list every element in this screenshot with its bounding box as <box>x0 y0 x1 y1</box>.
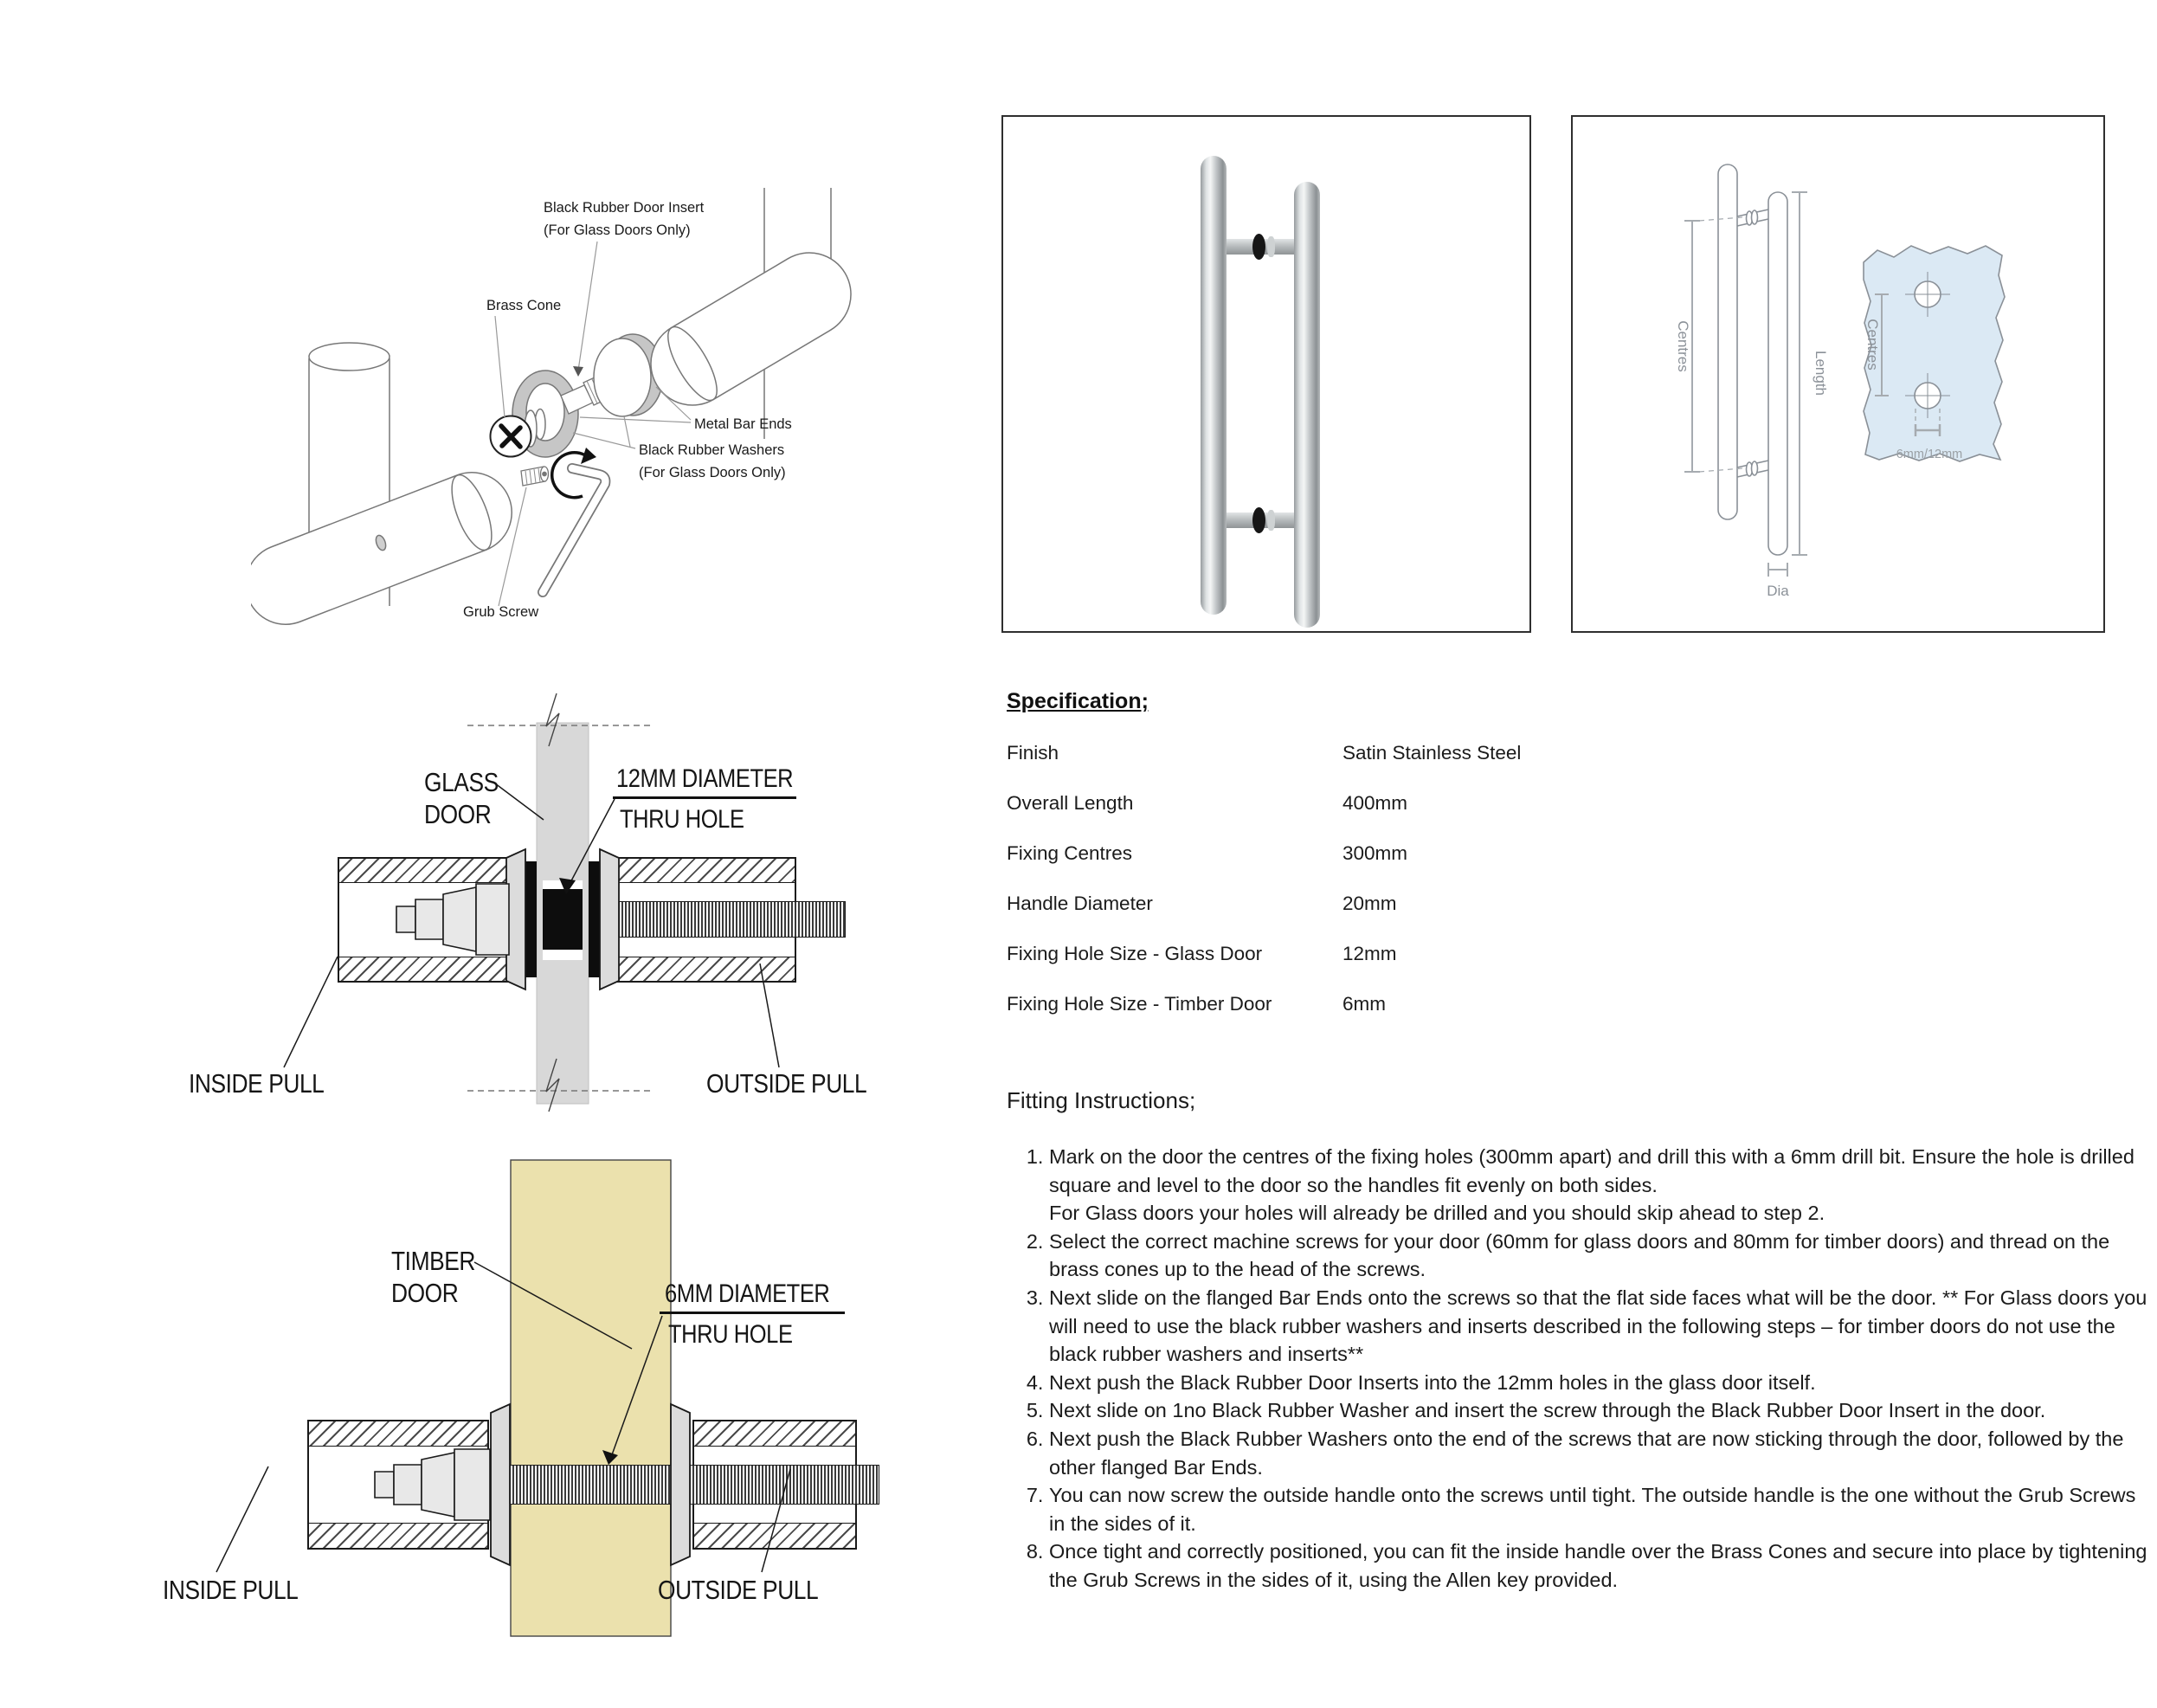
hole-label-underline <box>613 796 796 799</box>
collar-top <box>1267 236 1275 257</box>
timber-inside-pull-label: INSIDE PULL <box>163 1574 298 1606</box>
length-dim-label: Length <box>1813 351 1829 396</box>
fitting-step-2: Select the correct machine screws for yo… <box>1049 1228 2149 1284</box>
glass-hole-label-1: 12MM DIAMETER <box>616 763 793 795</box>
dia-dimension <box>1768 563 1787 577</box>
handle-bar-outside <box>1294 182 1320 628</box>
specification-table: Finish Satin Stainless Steel Overall Len… <box>1007 742 1664 1043</box>
spec-row-fixing-centres: Fixing Centres 300mm <box>1007 842 1664 893</box>
dia-dim-label: Dia <box>1767 583 1789 599</box>
rubber-washer-bottom <box>1252 507 1265 533</box>
fitting-step-5: Next slide on 1no Black Rubber Washer an… <box>1049 1396 2149 1425</box>
dimension-drawing-box: Centres Length Dia <box>1571 115 2105 633</box>
timber-outside-pull-label: OUTSIDE PULL <box>658 1574 818 1606</box>
fitting-step-6: Next push the Black Rubber Washers onto … <box>1049 1425 2149 1481</box>
label-black-rubber-door-insert: Black Rubber Door Insert <box>544 200 705 216</box>
bar-end-flanges <box>506 849 619 989</box>
product-photo-box <box>1001 115 1531 633</box>
fitting-step-3: Next slide on the flanged Bar Ends onto … <box>1049 1284 2149 1369</box>
glass-door-section: GLASS DOOR 12MM DIAMETER THRU HOLE INSID… <box>182 688 926 1130</box>
spec-value: 300mm <box>1342 842 1407 865</box>
spec-label: Finish <box>1007 742 1342 764</box>
hole-label-underline <box>660 1312 845 1314</box>
thru-hole-arrowhead <box>602 1450 618 1465</box>
handle-bar-inside <box>1201 156 1227 615</box>
spec-row-hole-glass: Fixing Hole Size - Glass Door 12mm <box>1007 943 1664 993</box>
length-dimension <box>1792 192 1807 555</box>
timber-hole-label-1: 6MM DIAMETER <box>665 1278 829 1310</box>
fitting-step-8: Once tight and correctly positioned, you… <box>1049 1537 2149 1594</box>
collar-bottom <box>1267 510 1275 531</box>
centres-dim-label: Centres <box>1675 320 1691 372</box>
glass-door-label-1: GLASS <box>424 766 499 798</box>
spec-row-hole-timber: Fixing Hole Size - Timber Door 6mm <box>1007 993 1664 1043</box>
glass-inside-pull-label: INSIDE PULL <box>189 1067 324 1099</box>
rubber-washer-top <box>1252 234 1265 260</box>
timber-door-label-1: TIMBER <box>391 1245 475 1277</box>
spec-label: Fixing Centres <box>1007 842 1342 865</box>
spec-value: 20mm <box>1342 893 1397 915</box>
spec-value: Satin Stainless Steel <box>1342 742 1521 764</box>
specification-title: Specification; <box>1007 689 1664 714</box>
bar-end-flanges <box>491 1404 690 1565</box>
label-grub-screw: Grub Screw <box>463 604 538 620</box>
glass-outside-pull-label: OUTSIDE PULL <box>706 1067 866 1099</box>
inside-handle-socket <box>251 470 512 624</box>
label-black-rubber-washers-2: (For Glass Doors Only) <box>639 465 786 480</box>
spec-row-finish: Finish Satin Stainless Steel <box>1007 742 1664 792</box>
thru-hole-arrowhead <box>559 878 576 894</box>
timber-section-over <box>156 1125 935 1649</box>
panel-centres-label: Centres <box>1864 319 1881 371</box>
spec-value: 12mm <box>1342 943 1397 965</box>
fitting-instructions-title: Fitting Instructions; <box>1007 1087 2149 1114</box>
hole-size-label: 6mm/12mm <box>1896 448 1963 461</box>
fitting-step-1: Mark on the door the centres of the fixi… <box>1049 1143 2149 1228</box>
brass-cone-section <box>375 1449 490 1520</box>
fitting-step-4: Next push the Black Rubber Door Inserts … <box>1049 1369 2149 1397</box>
door-panel <box>1864 246 2005 461</box>
fitting-steps-list: Mark on the door the centres of the fixi… <box>1007 1143 2149 1595</box>
brass-cone-section <box>396 884 509 955</box>
exploded-parts-diagram: Black Rubber Door Insert (For Glass Door… <box>251 169 1013 688</box>
fitting-instructions-section: Fitting Instructions; Mark on the door t… <box>1007 1087 2149 1595</box>
label-brass-cone: Brass Cone <box>486 298 561 313</box>
timber-door-section: TIMBER DOOR 6MM DIAMETER THRU HOLE INSID… <box>156 1125 935 1649</box>
label-metal-bar-ends: Metal Bar Ends <box>694 416 792 432</box>
datasheet-page: Black Rubber Door Insert (For Glass Door… <box>0 0 2157 1708</box>
spec-label: Fixing Hole Size - Glass Door <box>1007 943 1342 965</box>
glass-section-over <box>182 688 926 1130</box>
spec-row-overall-length: Overall Length 400mm <box>1007 792 1664 842</box>
fitting-step-7: You can now screw the outside handle ont… <box>1049 1481 2149 1537</box>
label-black-rubber-door-insert-2: (For Glass Doors Only) <box>544 222 691 238</box>
spec-row-handle-diameter: Handle Diameter 20mm <box>1007 893 1664 943</box>
outside-bar-end-cylinder <box>651 253 851 407</box>
glass-hole-label-2: THRU HOLE <box>620 803 744 835</box>
handle-outline <box>1718 164 1787 555</box>
timber-door-label-2: DOOR <box>391 1277 458 1309</box>
spec-value: 6mm <box>1342 993 1386 1015</box>
grub-screw-part <box>521 467 549 486</box>
allen-key <box>543 468 605 592</box>
spec-value: 400mm <box>1342 792 1407 815</box>
spec-label: Overall Length <box>1007 792 1342 815</box>
glass-door-label-2: DOOR <box>424 798 491 830</box>
dimension-drawing: Centres Length Dia <box>1573 117 2103 631</box>
spec-label: Handle Diameter <box>1007 893 1342 915</box>
label-black-rubber-washers: Black Rubber Washers <box>639 442 784 458</box>
specification-section: Specification; Finish Satin Stainless St… <box>1007 689 1664 1043</box>
spec-label: Fixing Hole Size - Timber Door <box>1007 993 1342 1015</box>
timber-hole-label-2: THRU HOLE <box>668 1318 793 1350</box>
